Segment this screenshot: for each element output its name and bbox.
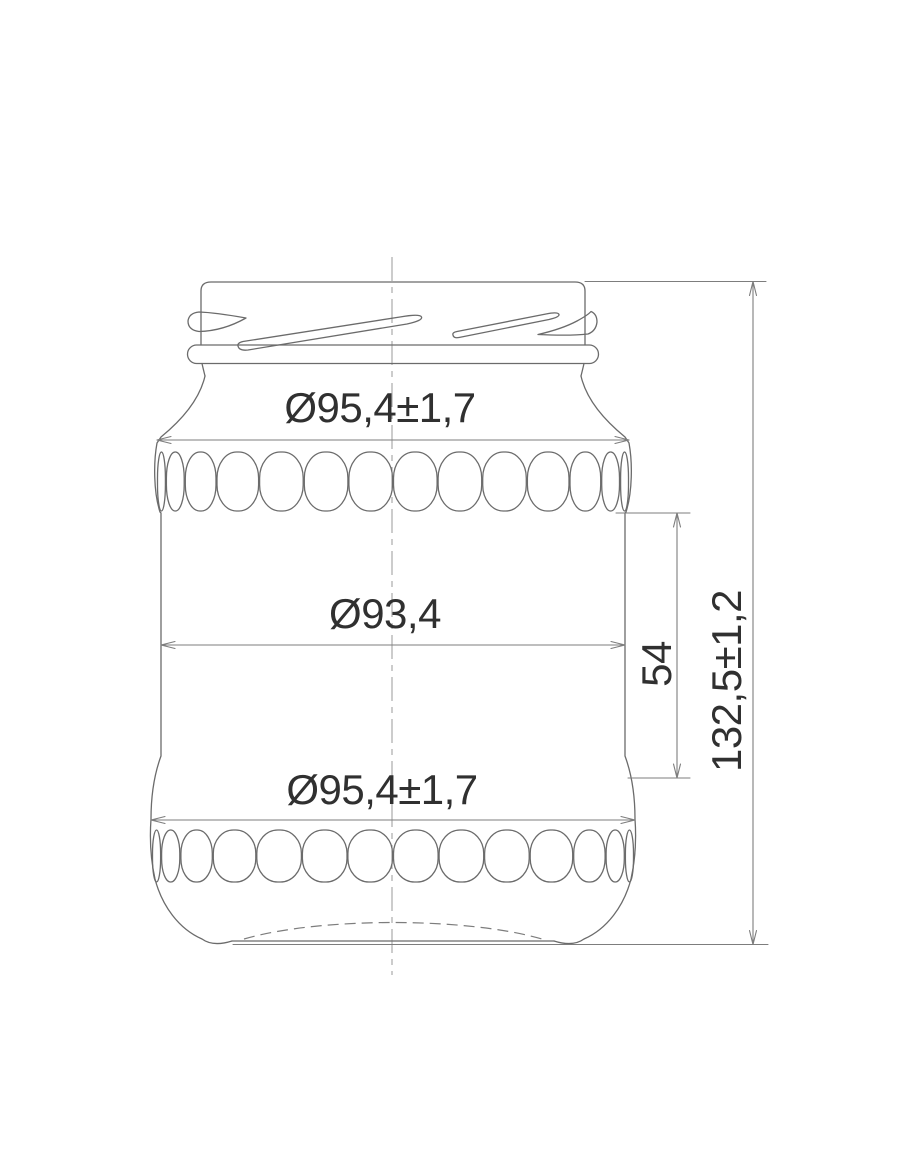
- dimension-label-overall-height: 132,5±1,2: [705, 561, 749, 801]
- jar-neck-outline: [188, 282, 599, 376]
- knurl-scallop: [602, 452, 620, 511]
- dim-top-diameter: [157, 437, 629, 444]
- dim-inner-diameter: [161, 642, 625, 649]
- knurl-scallop: [570, 452, 601, 511]
- knurl-scallop: [439, 830, 484, 882]
- knurl-scallop: [166, 452, 184, 511]
- collar-bead: [188, 345, 599, 364]
- knurl-scallop: [485, 830, 530, 882]
- knurl-scallop: [185, 452, 216, 511]
- knurl-scallop: [438, 452, 482, 511]
- knurl-scallop: [394, 830, 439, 882]
- knurl-band-upper: [158, 452, 629, 511]
- knurl-scallop: [625, 830, 633, 882]
- knurl-scallop: [302, 830, 347, 882]
- knurl-scallop: [621, 452, 629, 511]
- knurl-scallop: [153, 830, 161, 882]
- knurl-scallop: [257, 830, 302, 882]
- dimension-label-top-diameter: Ø95,4±1,7: [230, 386, 530, 430]
- jar-technical-drawing: Ø95,4±1,7 Ø93,4 Ø95,4±1,7 54 132,5±1,2: [0, 0, 910, 1155]
- knurl-scallop: [162, 830, 180, 882]
- knurl-band-lower: [153, 830, 634, 882]
- dimension-label-panel-height: 54: [635, 614, 679, 714]
- thread-lug-left: [188, 312, 246, 332]
- knurl-scallop: [304, 452, 348, 511]
- push-up-base-hidden-line: [244, 923, 542, 940]
- knurl-scallop: [530, 830, 573, 882]
- knurl-scallop: [348, 830, 393, 882]
- thread-lug-right: [453, 313, 559, 338]
- dimension-label-inner-diameter: Ø93,4: [235, 592, 535, 636]
- thread-lug-runout: [538, 312, 597, 336]
- knurl-scallop: [394, 452, 438, 511]
- dim-bottom-diameter: [151, 817, 635, 824]
- knurl-scallop: [158, 452, 166, 511]
- knurl-scallop: [483, 452, 527, 511]
- knurl-scallop: [217, 452, 259, 511]
- knurl-scallop: [349, 452, 393, 511]
- knurl-scallop: [181, 830, 212, 882]
- knurl-scallop: [260, 452, 304, 511]
- knurl-scallop: [606, 830, 624, 882]
- knurl-scallop: [213, 830, 256, 882]
- dimension-label-bottom-diameter: Ø95,4±1,7: [232, 768, 532, 812]
- jar-drawing-svg: [0, 0, 910, 1155]
- knurl-scallop: [574, 830, 605, 882]
- knurl-scallop: [527, 452, 569, 511]
